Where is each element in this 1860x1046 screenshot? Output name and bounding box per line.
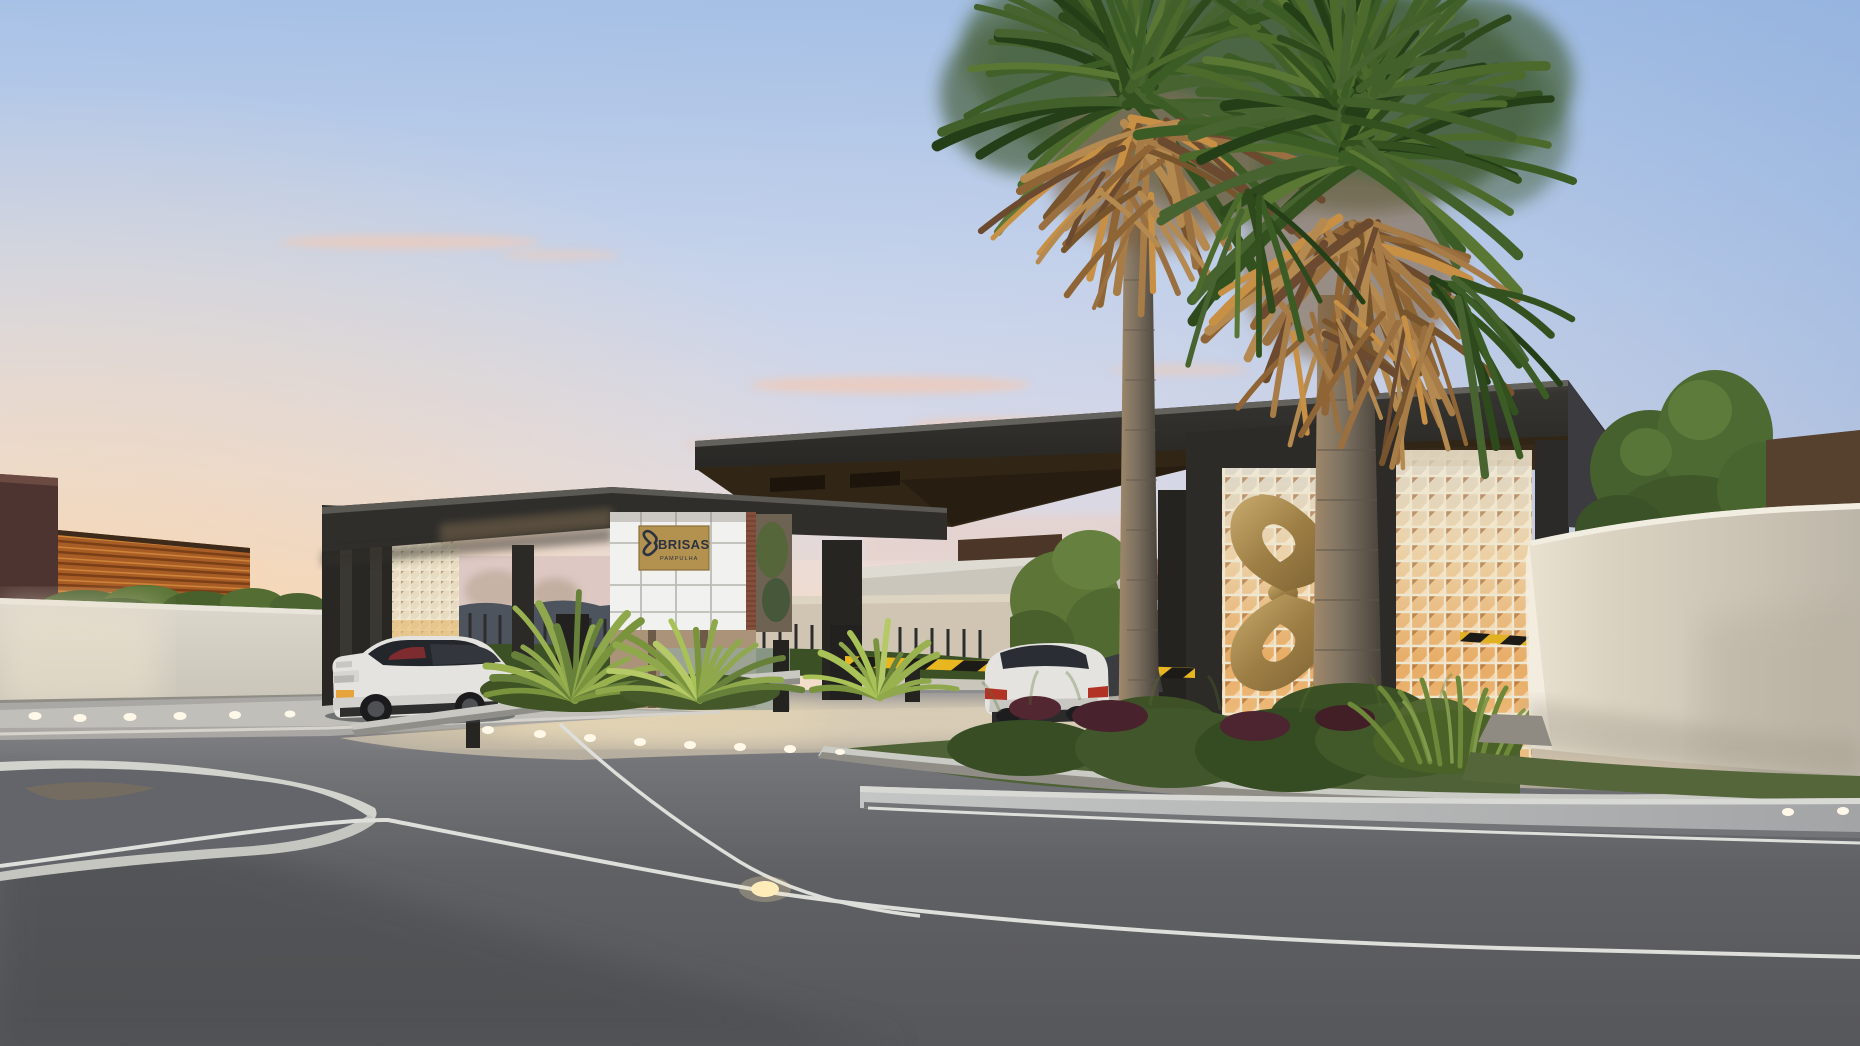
svg-text:BRISAS: BRISAS — [658, 537, 710, 552]
svg-text:PAMPULHA: PAMPULHA — [660, 556, 698, 562]
